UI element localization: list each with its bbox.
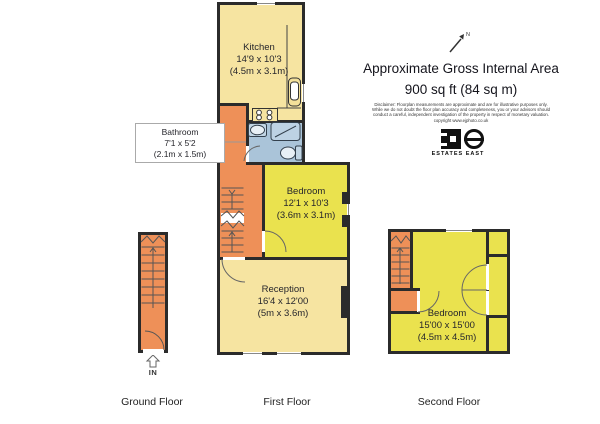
window [243, 352, 262, 355]
room-size-metric: (4.5m x 4.5m) [395, 332, 499, 344]
room-size-imperial: 14'9 x 10'3 [213, 54, 305, 66]
kitchen-label: Kitchen 14'9 x 10'3 (4.5m x 3.1m) [213, 42, 305, 78]
door-opening [143, 349, 164, 353]
floorplan-page: N IN Kitchen 14'9 x 10'3 (4.5m x 3.1m) B… [0, 0, 600, 424]
door-opening [246, 146, 249, 162]
estates-east-logo-icon [464, 138, 484, 141]
room-size-imperial: 16'4 x 12'00 [237, 296, 329, 308]
window [257, 2, 275, 5]
svg-text:N: N [466, 32, 470, 38]
second-floor-bedroom-label: Bedroom 15'00 x 15'00 (4.5m x 4.5m) [395, 308, 499, 344]
room-size-imperial: 12'1 x 10'3 [260, 198, 352, 210]
room-size-metric: (5m x 3.6m) [237, 308, 329, 320]
room-size-metric: (2.1m x 1.5m) [136, 149, 224, 160]
agency-name: ESTATES EAST [426, 151, 490, 157]
entrance-label: IN [140, 368, 166, 377]
area-title-line2: 900 sq ft (84 sq m) [322, 79, 600, 100]
chimney-breast [341, 286, 350, 318]
room-name: Kitchen [213, 42, 305, 54]
room-name: Bedroom [260, 186, 352, 198]
room-name: Bathroom [136, 127, 224, 138]
room-size-metric: (4.5m x 3.1m) [213, 66, 305, 78]
window [446, 229, 472, 232]
bathroom-room [246, 120, 305, 165]
first-floor-label: First Floor [232, 396, 342, 408]
first-floor-bedroom-label: Bedroom 12'1 x 10'3 (3.6m x 3.1m) [260, 186, 352, 222]
area-title-line1: Approximate Gross Internal Area [322, 58, 600, 79]
ground-floor-staircase [138, 232, 168, 353]
room-size-metric: (3.6m x 3.1m) [260, 210, 352, 222]
window [277, 352, 301, 355]
second-floor-staircase [388, 229, 413, 291]
second-floor-label: Second Floor [394, 396, 504, 408]
room-size-imperial: 7'1 x 5'2 [136, 138, 224, 149]
room-name: Reception [237, 284, 329, 296]
disclaimer-text: Disclaimer: Floorplan measurements are a… [368, 102, 554, 123]
bathroom-label: Bathroom 7'1 x 5'2 (2.1m x 1.5m) [135, 123, 225, 163]
estates-east-logo-icon [450, 136, 456, 142]
hallway-lower [217, 162, 265, 260]
door-opening [262, 231, 265, 252]
disclaimer-line: conduct a careful, independent investiga… [368, 112, 554, 117]
window [302, 84, 305, 102]
estates-east-logo-icon [441, 133, 447, 136]
room-name: Bedroom [395, 308, 499, 320]
north-arrow-icon: N [440, 26, 480, 60]
closet-door-opening [486, 264, 489, 290]
room-size-imperial: 15'00 x 15'00 [395, 320, 499, 332]
reception-label: Reception 16'4 x 12'00 (5m x 3.6m) [237, 284, 329, 320]
door-opening [223, 257, 245, 260]
estates-east-logo-icon [441, 143, 447, 146]
disclaimer-copyright: copyright www.ejphoto.co.uk [368, 118, 554, 123]
entrance-arrow-icon [145, 355, 161, 368]
area-summary: Approximate Gross Internal Area 900 sq f… [322, 58, 600, 100]
ground-floor-label: Ground Floor [97, 396, 207, 408]
wardrobe-divider [486, 254, 510, 257]
